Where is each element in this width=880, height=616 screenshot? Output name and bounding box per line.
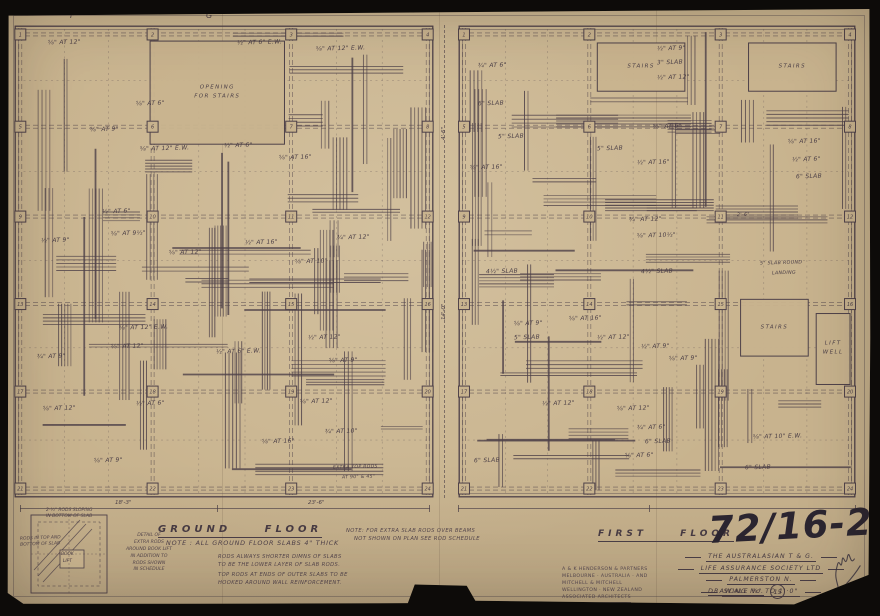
dimension-label: 18'-3": [115, 500, 132, 506]
drawing-number-handwritten: 72/16-22: [707, 499, 880, 552]
column-number: 16: [847, 302, 853, 308]
column-number: 23: [288, 486, 294, 492]
column-number: 6: [151, 125, 154, 131]
column-number: 24: [847, 486, 853, 492]
dimension-label: 14'-0": [441, 303, 447, 320]
column-number: 23: [717, 486, 723, 492]
column-number: 3: [290, 32, 293, 38]
column-number: 21: [461, 486, 467, 492]
opening-outline: [597, 43, 685, 91]
column-number: 14: [149, 302, 155, 308]
column-number: 5: [19, 125, 22, 131]
architects-line: MELBOURNE · AUSTRALIA · AND: [562, 573, 712, 580]
opening-outline: [749, 43, 837, 91]
book-lift-detail: BOOKLIFT 2-½" RODS SLOPINGIN BOTTOM OF S…: [22, 506, 116, 602]
column-number: 9: [19, 214, 22, 220]
opening-outline: [150, 41, 284, 144]
column-number: 1: [462, 32, 465, 38]
column-number: 14: [586, 302, 592, 308]
column-number: 20: [847, 389, 853, 395]
scanned-drawing-sheet: FG 1234567891011121314151617181920212223…: [0, 0, 880, 616]
dimension-line-vertical: 4'-6"14'-0": [444, 25, 445, 498]
column-number: 15: [288, 302, 294, 308]
column-number: 19: [717, 389, 723, 395]
column-number: 13: [17, 302, 23, 308]
column-number: 4: [848, 32, 851, 38]
column-number: 12: [425, 214, 431, 220]
ground-floor-plan: 123456789101112131415161718192021222324 …: [14, 25, 434, 498]
note-rods-lower-layer: RODS ALWAYS SHORTER DIMNS OF SLABSTO BE …: [218, 554, 342, 570]
column-number: 9: [462, 214, 465, 220]
column-number: 10: [586, 214, 592, 220]
column-number: 8: [426, 125, 429, 131]
opening-outline: [816, 314, 850, 385]
fold-crease: [439, 6, 440, 608]
paper-sheet: FG 1234567891011121314151617181920212223…: [6, 6, 872, 608]
column-number: 15: [717, 302, 723, 308]
architects-line: ASSOCIATED ARCHITECTS: [562, 594, 631, 603]
column-number: 1: [19, 32, 22, 38]
ground-floor-note: NOTE : ALL GROUND FLOOR SLABS 4" THICK: [166, 539, 339, 547]
ground-floor-linework: 123456789101112131415161718192021222324: [14, 25, 434, 498]
column-number: 19: [288, 389, 294, 395]
column-number: 11: [717, 214, 723, 220]
column-number: 18: [586, 389, 592, 395]
architects-block: A & K HENDERSON & PARTNERSMELBOURNE · AU…: [562, 566, 712, 603]
drawing-no-badge: 15: [770, 584, 785, 599]
column-number: 12: [847, 214, 853, 220]
column-number: 13: [461, 302, 467, 308]
column-number: 8: [848, 125, 851, 131]
column-number: 18: [149, 389, 155, 395]
column-number: 17: [17, 389, 24, 395]
client-name-line1: THE AUSTRALASIAN T & G.: [706, 553, 816, 562]
column-number: 6: [588, 125, 591, 131]
architects-line: A & K HENDERSON & PARTNERS: [562, 566, 712, 573]
drawing-number-row: DRAWING No. 15: [708, 584, 785, 599]
column-number: 22: [149, 486, 155, 492]
column-number: 16: [425, 302, 431, 308]
column-number: 2: [588, 32, 591, 38]
first-floor-plan: 123456789101112131415161718192021222324 …: [458, 25, 856, 498]
column-number: 5: [462, 125, 465, 131]
detail-note-left: RODS IN TOP ANDBOTTOM OF SLAB: [20, 535, 61, 549]
grid-letter-F: F: [70, 11, 75, 20]
book-lift-label: BOOKLIFT: [61, 552, 74, 565]
column-number: 22: [586, 486, 592, 492]
grid-letter-G: G: [206, 11, 212, 20]
drawing-no-label: DRAWING No.: [708, 587, 764, 596]
column-number: 10: [149, 214, 155, 220]
column-number: 17: [461, 389, 468, 395]
column-number: 21: [17, 486, 23, 492]
column-number: 2: [151, 32, 154, 38]
ground-floor-title: GROUND FLOOR: [158, 517, 322, 536]
column-number: 20: [425, 389, 431, 395]
column-number: 3: [719, 32, 722, 38]
note-top-rods-hooked: TOP RODS AT ENDS OF OUTER SLABS TO BEHOO…: [218, 572, 348, 588]
first-floor-linework: 123456789101112131415161718192021222324: [458, 25, 856, 498]
note-extra-slab-rods: NOTE: FOR EXTRA SLAB RODS OVER BEAMS NOT…: [346, 528, 480, 544]
dimension-label: 4'-6": [441, 127, 447, 140]
opening-outline: [741, 299, 809, 356]
architects-line: WELLINGTON · NEW ZEALAND: [562, 587, 712, 594]
column-number: 24: [425, 486, 431, 492]
detail-note-top: 2-½" RODS SLOPINGIN BOTTOM OF SLAB: [46, 508, 92, 520]
dimension-label: 23'-6": [308, 500, 325, 506]
client-name-line2: LIFE ASSURANCE SOCIETY LTD: [699, 565, 823, 574]
column-number: 4: [426, 32, 429, 38]
column-number: 11: [288, 214, 294, 220]
architects-line: MITCHELL & MITCHELL: [562, 580, 712, 587]
